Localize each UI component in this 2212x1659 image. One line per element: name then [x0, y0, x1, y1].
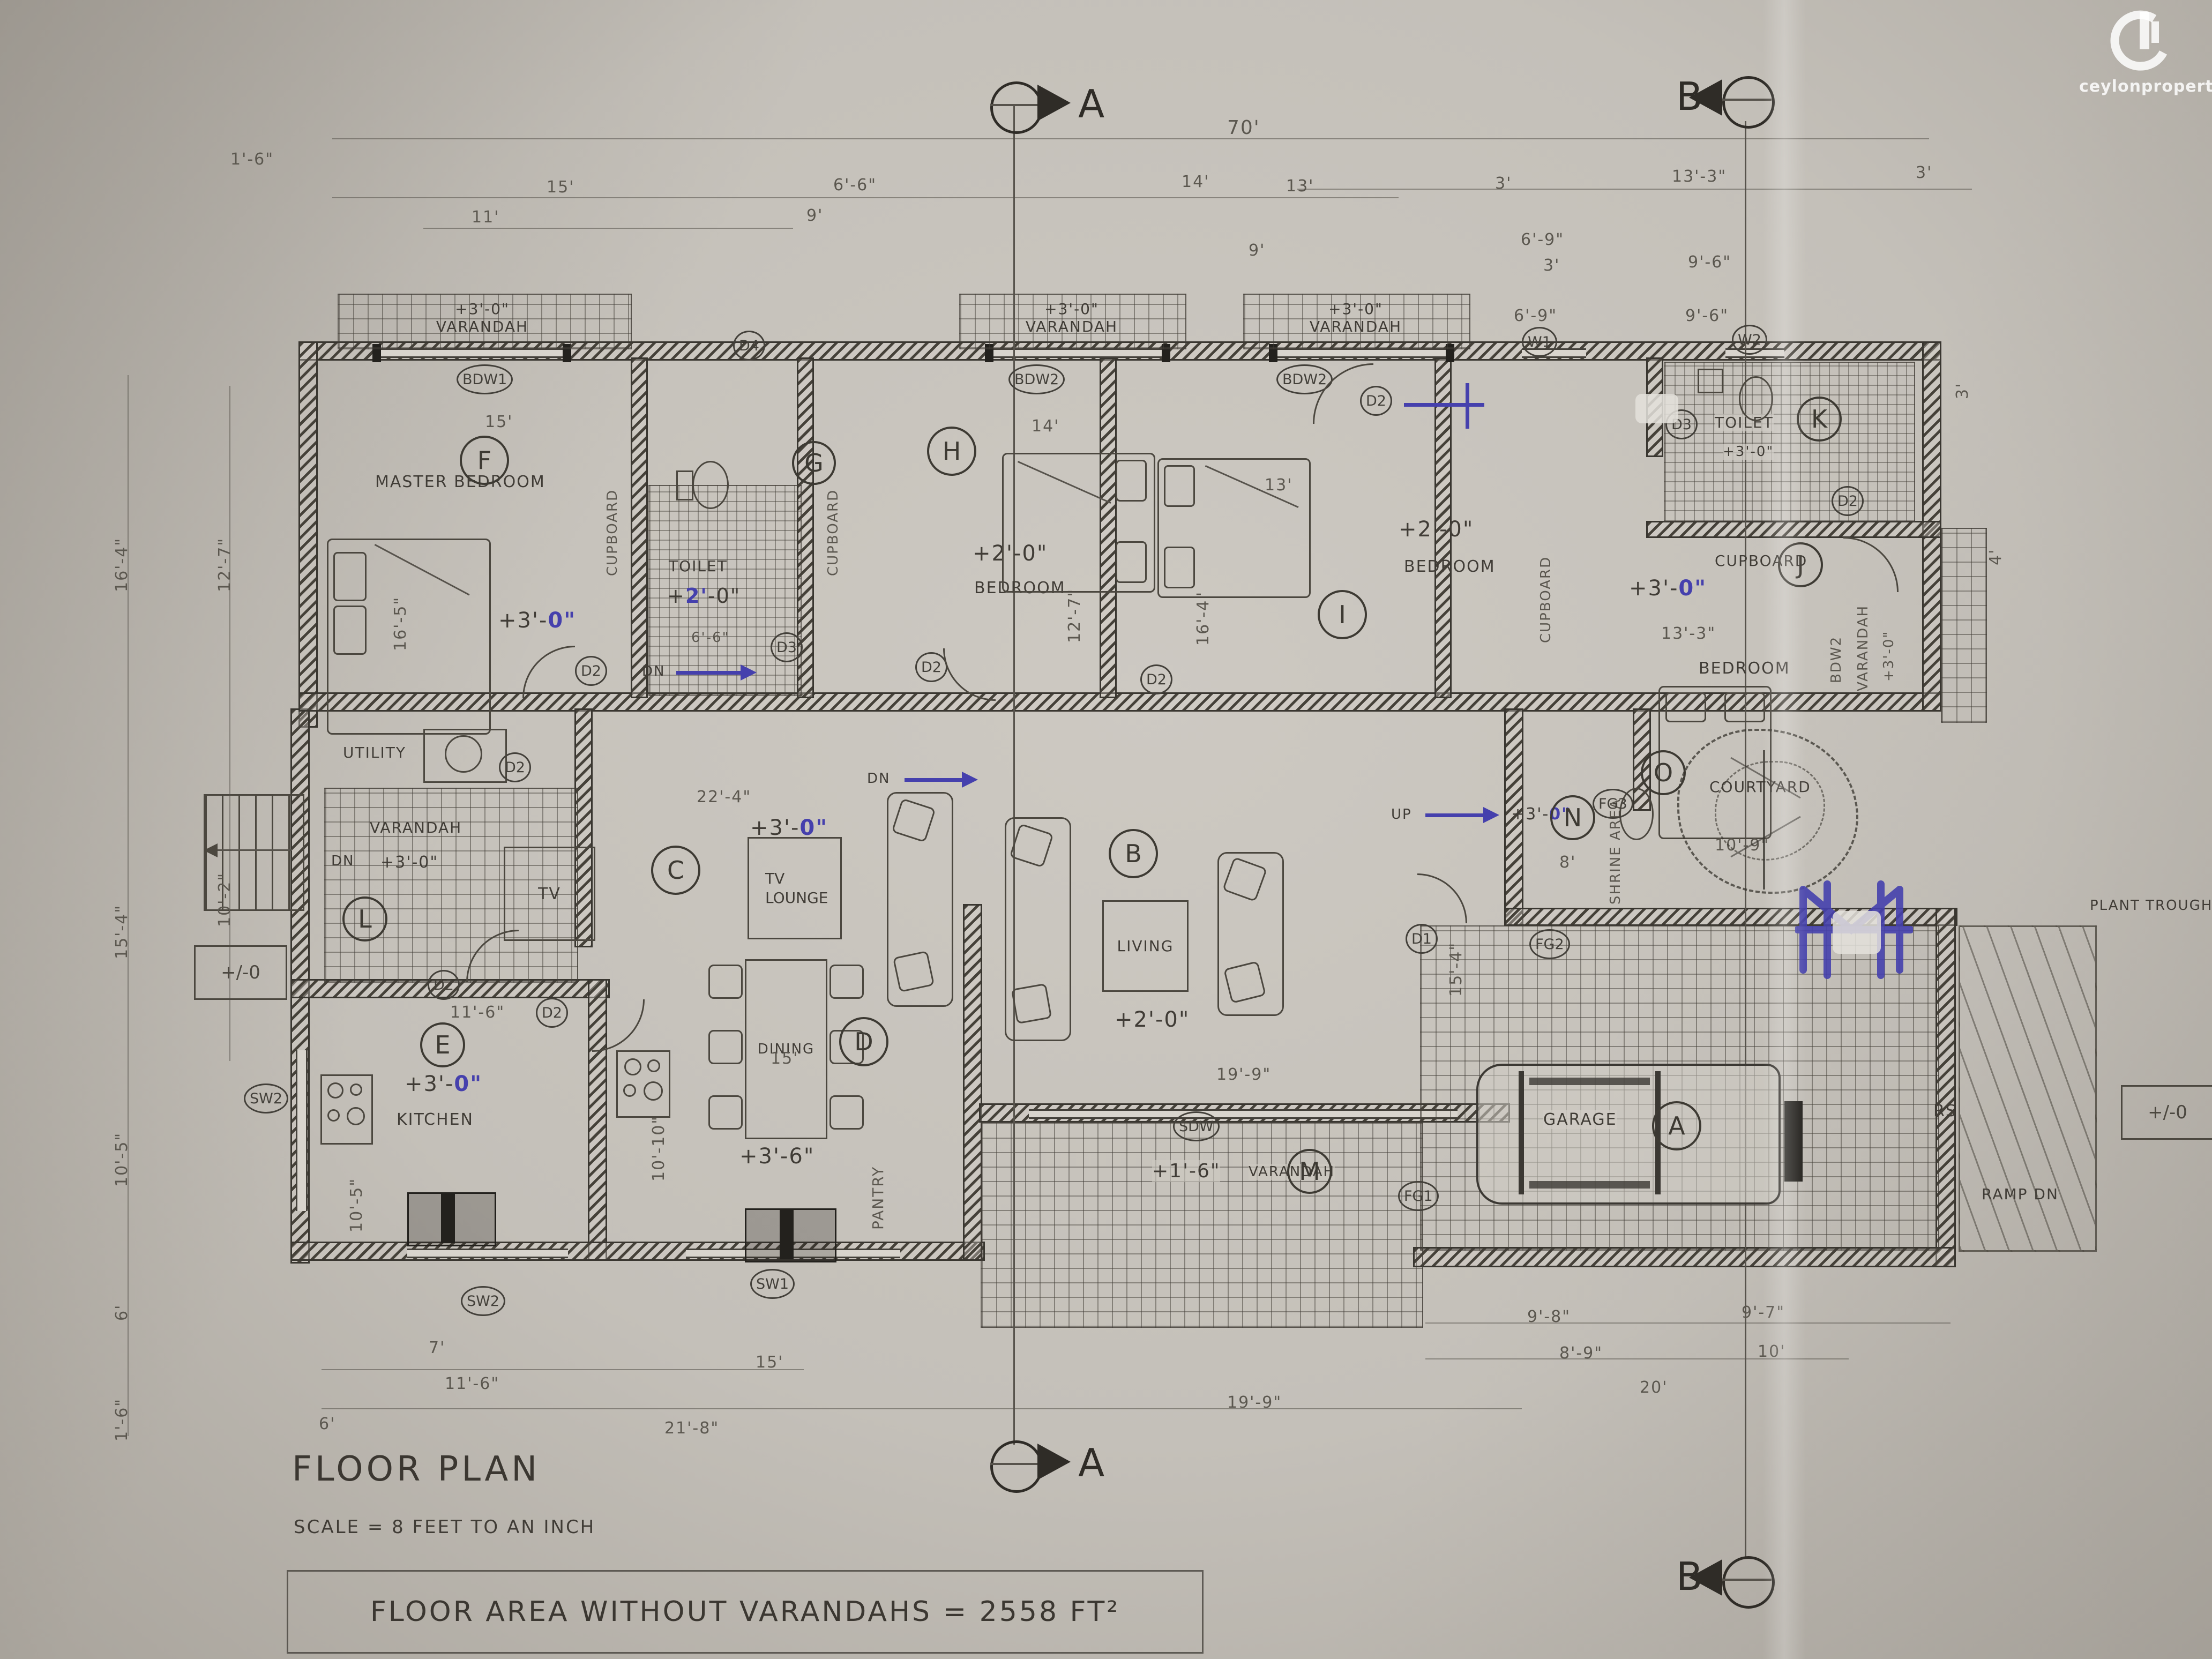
- door-arc: [1843, 537, 1899, 592]
- dim-text: 3': [1543, 256, 1560, 275]
- dim-text: 11'-6": [450, 1003, 505, 1022]
- room-marker-h: H: [927, 427, 976, 476]
- dim-text: 16'-4": [113, 537, 131, 592]
- dim-text: 16'-4": [1194, 591, 1213, 646]
- lounge-table: TV LOUNGE: [748, 837, 842, 939]
- varandah-m-floor: [981, 1122, 1423, 1328]
- room-name-garage: GARAGE: [1543, 1110, 1617, 1129]
- pillow: [1116, 541, 1147, 583]
- pillow: [1724, 692, 1765, 722]
- room-marker-c: C: [651, 846, 700, 895]
- plant-trough-label: PLANT TROUGH: [2090, 898, 2212, 914]
- dim-text: 11'-6": [445, 1374, 499, 1393]
- fg3-tag: FG3: [1593, 789, 1633, 819]
- d1-tag: D1: [1406, 924, 1438, 954]
- pillow: [333, 606, 367, 655]
- sheet-title: FLOOR PLAN: [292, 1449, 540, 1489]
- watermark-logo: ceylonproperty.lk: [2079, 5, 2208, 113]
- dim-line: [423, 228, 793, 229]
- d2-tag: D2: [1140, 664, 1172, 694]
- basin-k: [1698, 369, 1723, 393]
- door-arc: [592, 999, 645, 1052]
- dim-text: 15': [771, 1049, 798, 1068]
- stairs-arrow-head: [204, 843, 218, 857]
- dim-text: 6'-9": [1521, 230, 1564, 249]
- dim-text: 13'-3": [1672, 167, 1727, 186]
- dim-text: 6': [113, 1304, 131, 1321]
- dim-text: 21'-8": [664, 1419, 719, 1438]
- dim-text: 13': [1286, 177, 1314, 196]
- cushion: [1011, 983, 1052, 1024]
- d4-tag: D4: [733, 331, 765, 361]
- room-name-kitchen: KITCHEN: [397, 1110, 474, 1129]
- bdw2-j-label: BDW2: [1828, 636, 1844, 683]
- dim-text: 20': [1640, 1378, 1668, 1397]
- pen-mark: [1404, 403, 1484, 407]
- dim-line: [322, 1408, 1522, 1409]
- dim-text: 3': [1953, 383, 1972, 399]
- rs-label: RS: [1933, 1102, 1957, 1120]
- level-toilet-g: +2'-0": [667, 584, 741, 608]
- d2-tag: D2: [428, 970, 460, 1000]
- wall-segment: [300, 343, 316, 726]
- wc-tank: [676, 470, 693, 500]
- dim-text: 6'-9": [1514, 307, 1557, 325]
- dim-text: 70': [1227, 117, 1260, 139]
- w1-tag: W1: [1522, 327, 1557, 357]
- window-sw2: [407, 1249, 568, 1258]
- dim-text: 3': [1495, 174, 1512, 193]
- dim-text: 9': [1249, 241, 1265, 260]
- dim-text: 15'-4": [1447, 942, 1466, 997]
- room-marker-a: A: [1652, 1101, 1701, 1150]
- level-zero-box-left: +/-0: [194, 945, 287, 1000]
- room-name-bed-i: BEDROOM: [1404, 557, 1496, 576]
- dim-text: 9'-6": [1688, 253, 1731, 272]
- dim-text: 10'-2": [215, 872, 234, 927]
- window-bdw2: [989, 348, 1165, 358]
- dim-line: [1297, 189, 1972, 190]
- room-marker-e: E: [420, 1022, 465, 1067]
- brand-icon: [2103, 5, 2184, 75]
- dn-label-corridor: DN: [642, 663, 665, 679]
- dim-text: 9'-6": [1685, 307, 1729, 325]
- room-marker-i: I: [1318, 590, 1367, 639]
- level-kitchen: +3'-0": [405, 1072, 482, 1096]
- dim-text: 19'-9": [1216, 1065, 1271, 1084]
- door-arc: [943, 648, 996, 701]
- cushion: [893, 951, 935, 992]
- dim-text: 6'-6": [833, 176, 877, 195]
- dim-text: 6'-6": [691, 630, 730, 646]
- cupboard-label: CUPBOARD: [604, 489, 621, 576]
- level-bed-i: +2'-0": [1399, 517, 1474, 542]
- stairs-arrow-line: [212, 849, 292, 851]
- ramp-dn-label: RAMP DN: [1982, 1185, 2059, 1203]
- wall-segment: [1937, 909, 1954, 1266]
- area-box: FLOOR AREA WITHOUT VARANDAHS = 2558 FT²: [287, 1570, 1204, 1654]
- bdw2-tag: BDW2: [1008, 364, 1065, 394]
- pillow: [1164, 465, 1195, 507]
- dim-text: 15': [485, 413, 513, 431]
- car: [1476, 1064, 1781, 1205]
- pen-arrow-head: [962, 772, 978, 788]
- dim-text: 14': [1032, 417, 1059, 436]
- dim-text: 14': [1182, 173, 1209, 191]
- living-table: LIVING: [1102, 900, 1189, 992]
- cupboard-label: CUPBOARD: [1538, 556, 1554, 643]
- varandah3-label: +3'-0" VARANDAH: [1259, 300, 1452, 335]
- dim-line: [332, 138, 1929, 139]
- dim-text: 10'-10": [649, 1116, 668, 1182]
- dim-text: 10'-5": [347, 1178, 366, 1232]
- paper-crease: [1763, 0, 1806, 1659]
- dn-label-lounge: DN: [867, 771, 890, 787]
- pen-arrow-head: [1483, 807, 1499, 823]
- wall-segment: [1415, 1249, 1954, 1266]
- dim-text: 4': [1986, 549, 2005, 565]
- varandah-l-level: +3'-0": [380, 853, 438, 872]
- room-marker-b: B: [1109, 829, 1158, 878]
- correction-patch: [1833, 911, 1881, 954]
- sw2-tag-bottom: SW2: [461, 1286, 505, 1316]
- pen-arrow: [905, 778, 963, 782]
- dim-text: 1'-6": [230, 150, 274, 169]
- cupboard-label: CUPBOARD: [825, 489, 841, 576]
- stove-kitchen: [320, 1074, 373, 1145]
- chair: [708, 1030, 743, 1064]
- floor-plan-sheet: A B A B 1'-6" 70' 15' 6'-6" 14' 13' 3' 1…: [0, 0, 2212, 1659]
- correction-patch: [1635, 394, 1678, 423]
- pillow: [1116, 460, 1147, 502]
- varandah-j-strip: [1941, 528, 1987, 723]
- varandah-l-name: VARANDAH: [370, 819, 462, 836]
- sink-kitchen: [407, 1192, 496, 1246]
- room-name-toilet-g: TOILET: [669, 557, 728, 575]
- window-sdw: [1029, 1109, 1458, 1119]
- up-label: UP: [1391, 806, 1412, 823]
- dim-text: 15'-4": [113, 905, 131, 959]
- bdw1-tag: BDW1: [457, 364, 513, 394]
- dim-text: 11': [472, 208, 499, 227]
- dim-text: 9'-8": [1527, 1307, 1571, 1326]
- d2-tag: D2: [915, 652, 947, 682]
- room-marker-f: F: [460, 436, 509, 485]
- dim-text: 19'-9": [1227, 1393, 1282, 1412]
- level-living: +2'-0": [1115, 1007, 1190, 1032]
- dim-text: 6': [319, 1415, 335, 1433]
- pillow: [1665, 692, 1706, 722]
- sw2-tag-left: SW2: [244, 1083, 288, 1114]
- wc-g: [692, 461, 729, 509]
- dim-text: 8'-9": [1559, 1344, 1603, 1363]
- d2-tag: D2: [536, 998, 568, 1028]
- dim-text: 15': [756, 1353, 783, 1372]
- varandah1-label: +3'-0" VARANDAH: [386, 300, 579, 335]
- varandah-j-level: +3'-0": [1881, 631, 1897, 682]
- room-marker-d: D: [839, 1017, 888, 1066]
- pillow: [333, 552, 367, 601]
- varandah2-label: +3'-0" VARANDAH: [975, 300, 1168, 335]
- room-marker-n: N: [1550, 795, 1595, 840]
- dim-text: 15': [547, 178, 574, 197]
- sheet-scale: SCALE = 8 FEET TO AN INCH: [294, 1516, 595, 1538]
- dim-text: 1'-6": [113, 1398, 131, 1441]
- dim-text: 9': [806, 206, 823, 225]
- pen-arrow-head: [741, 664, 757, 681]
- dim-text: 3': [1916, 163, 1932, 182]
- dim-text: 12'-7": [1065, 588, 1084, 643]
- pen-arrow: [1425, 813, 1484, 817]
- tv-unit: TV: [504, 847, 595, 941]
- sw1-tag: SW1: [750, 1269, 795, 1299]
- chair: [708, 1095, 743, 1130]
- dim-text: 13'-3": [1661, 624, 1716, 643]
- level-varandah-m: +1'-6": [1152, 1160, 1220, 1182]
- chair: [708, 965, 743, 999]
- dim-text: 8': [1559, 853, 1576, 872]
- door-arc: [1417, 873, 1467, 923]
- chair: [829, 1095, 864, 1130]
- room-name-pantry: PANTRY: [869, 1166, 887, 1230]
- pen-mark: [1466, 383, 1469, 429]
- dim-text: 22'-4": [697, 788, 751, 806]
- room-name-utility: UTILITY: [343, 744, 406, 761]
- chair: [829, 965, 864, 999]
- level-zero-box-right: +/-0: [2121, 1085, 2212, 1140]
- utility-sink: [445, 735, 482, 773]
- door-arc: [522, 646, 575, 698]
- stove-pantry: [616, 1050, 670, 1118]
- w2-tag: W2: [1732, 325, 1767, 355]
- room-marker-m: M: [1287, 1149, 1332, 1194]
- dim-line: [332, 197, 1399, 198]
- d2-tag: D2: [575, 656, 607, 686]
- varandah-l-dn: DN: [331, 853, 354, 869]
- level-master: +3'-0": [498, 608, 576, 633]
- level-bed-j: +3'-0": [1629, 576, 1707, 601]
- room-marker-l: L: [342, 896, 387, 941]
- dim-text: 10'-5": [113, 1132, 131, 1187]
- window-sw2-left: [296, 1050, 308, 1211]
- room-marker-g: G: [792, 441, 836, 485]
- wall-segment: [632, 359, 646, 697]
- pillow: [1164, 547, 1195, 588]
- window-bdw1: [375, 348, 568, 358]
- fg1-tag: FG1: [1398, 1181, 1439, 1211]
- window-bdw2: [1273, 348, 1449, 358]
- d2-tag: D2: [499, 752, 531, 782]
- dim-line: [322, 1369, 804, 1370]
- level-dining: +3'-6": [739, 1144, 814, 1169]
- wall-segment: [965, 906, 981, 1259]
- fg2-tag: FG2: [1529, 929, 1570, 959]
- dim-line: [1425, 1322, 1951, 1324]
- dim-text: 12'-7": [215, 537, 234, 592]
- dim-text: 7': [429, 1339, 445, 1357]
- pen-arrow: [676, 671, 741, 675]
- d3-tag: D3: [771, 632, 803, 662]
- sdw-tag: SDW: [1173, 1111, 1220, 1141]
- sink-sw1: [745, 1208, 836, 1262]
- varandah-j-label: VARANDAH: [1855, 605, 1871, 691]
- d2-tag: D2: [1832, 486, 1864, 516]
